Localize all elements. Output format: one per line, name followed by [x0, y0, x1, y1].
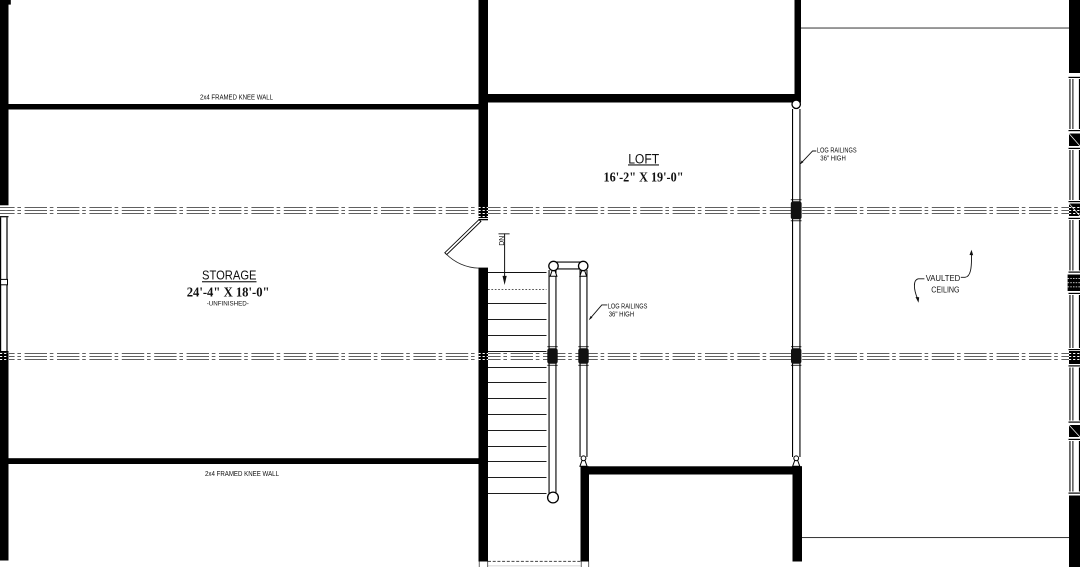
svg-text:16'-2" X 19'-0": 16'-2" X 19'-0": [604, 169, 684, 184]
svg-text:2x4 FRAMED KNEE WALL: 2x4 FRAMED KNEE WALL: [205, 471, 279, 478]
svg-text:36" HIGH: 36" HIGH: [609, 311, 635, 318]
svg-text:2x4 FRAMED KNEE WALL: 2x4 FRAMED KNEE WALL: [200, 94, 273, 101]
svg-text:24'-4" X 18'-0": 24'-4" X 18'-0": [187, 284, 270, 299]
svg-text:-UNFINISHED-: -UNFINISHED-: [207, 301, 249, 308]
svg-text:LOG RAILINGS: LOG RAILINGS: [608, 303, 648, 310]
svg-text:STORAGE: STORAGE: [202, 268, 257, 283]
svg-text:DN: DN: [497, 236, 506, 246]
svg-text:CEILING: CEILING: [931, 285, 959, 294]
svg-text:36" HIGH: 36" HIGH: [820, 156, 846, 163]
svg-text:VAULTED: VAULTED: [926, 274, 961, 283]
svg-text:LOFT: LOFT: [628, 152, 659, 167]
svg-text:LOG RAILINGS: LOG RAILINGS: [817, 147, 857, 154]
